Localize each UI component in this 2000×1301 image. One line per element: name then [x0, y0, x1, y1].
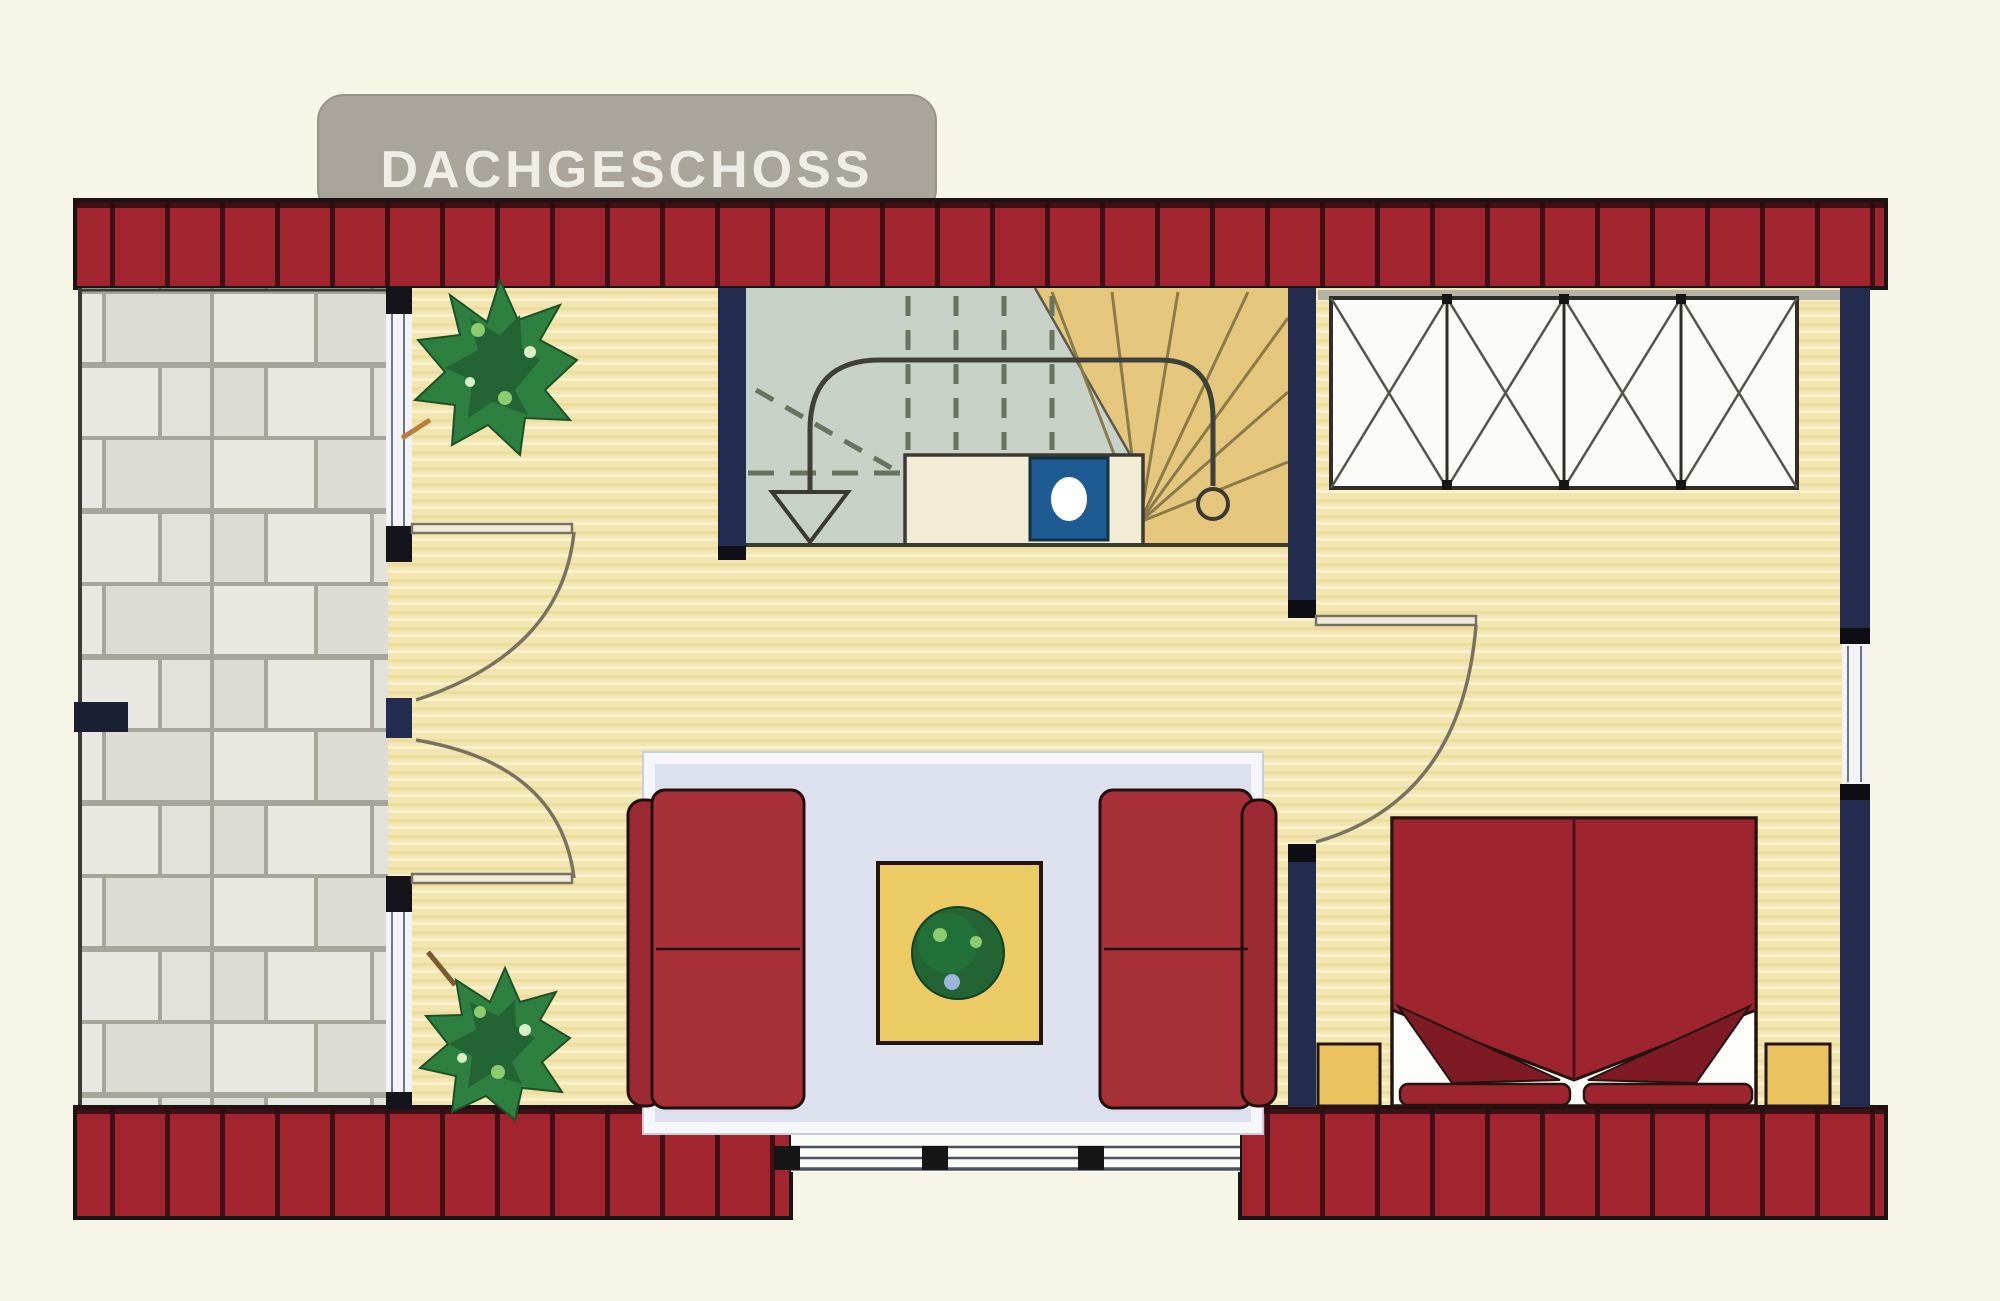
terrace — [78, 288, 388, 1110]
newel-post-icon — [1198, 489, 1228, 519]
floor-plan-drawing: DACHGESCHOSS — [0, 0, 2000, 1301]
nightstand-right — [1766, 1044, 1830, 1106]
right-wall-window — [1842, 644, 1868, 784]
stairwell — [718, 288, 1288, 560]
sofa-left — [628, 790, 804, 1108]
floor-plan-canvas: DACHGESCHOSS — [0, 0, 2000, 1301]
bed-pillow-right — [1584, 1084, 1752, 1105]
bed — [1392, 818, 1756, 1106]
window-post-icon — [922, 1146, 948, 1170]
roof-band-top — [75, 200, 1886, 288]
floor-label-text: DACHGESCHOSS — [381, 141, 874, 199]
coffee-table — [878, 863, 1041, 1043]
window-post-icon — [1078, 1146, 1104, 1170]
chimney — [1030, 458, 1108, 540]
closet — [1318, 290, 1840, 490]
bed-pillow-left — [1400, 1084, 1570, 1105]
sofa-right — [1100, 790, 1276, 1108]
table-plant-icon — [912, 907, 1004, 999]
window-post-icon — [774, 1146, 800, 1170]
wall-marker — [74, 702, 128, 732]
right-wall — [1840, 288, 1870, 1107]
roof-band-bottom-right — [1240, 1107, 1886, 1218]
stair-wall — [718, 288, 746, 546]
floor-label-tab: DACHGESCHOSS — [318, 95, 936, 215]
nightstand-left — [1318, 1044, 1380, 1106]
